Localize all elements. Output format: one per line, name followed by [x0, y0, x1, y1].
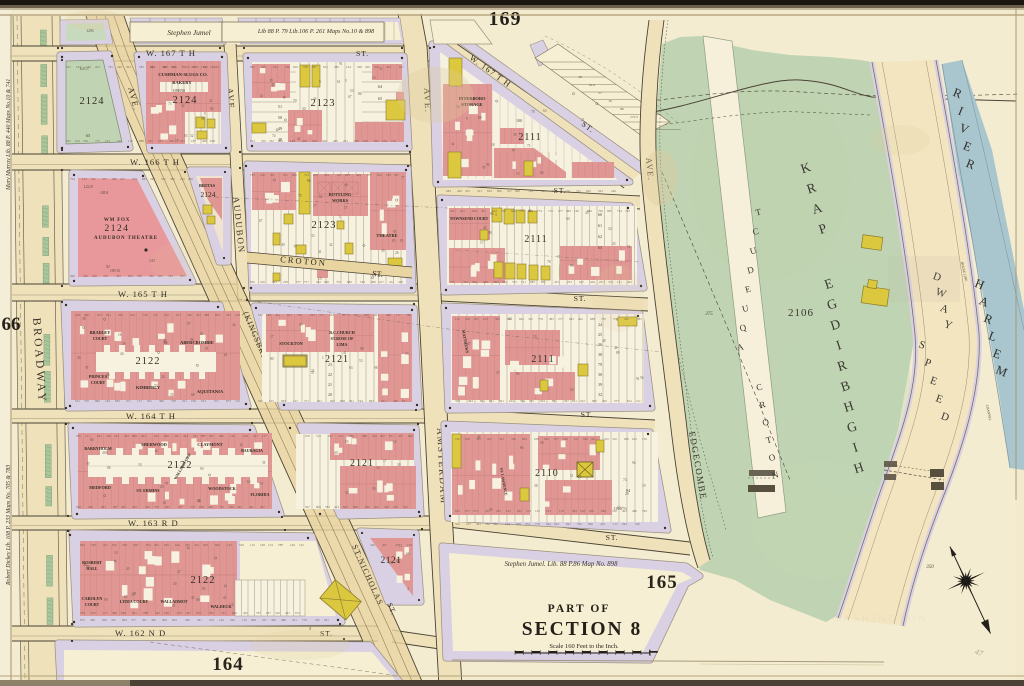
svg-text:375: 375 — [705, 312, 713, 317]
svg-text:164: 164 — [212, 654, 244, 675]
svg-text:ST. ERMINS: ST. ERMINS — [136, 488, 160, 493]
svg-text:852: 852 — [273, 65, 278, 69]
svg-text:LYDIA COURT: LYDIA COURT — [120, 599, 149, 604]
svg-text:341: 341 — [91, 177, 96, 181]
svg-text:404: 404 — [468, 399, 473, 403]
svg-text:286: 286 — [334, 65, 339, 69]
svg-text:923: 923 — [554, 522, 559, 526]
svg-text:452: 452 — [243, 611, 248, 615]
svg-text:BARRYHOLM: BARRYHOLM — [84, 446, 112, 451]
svg-text:51: 51 — [627, 245, 631, 249]
svg-text:853: 853 — [507, 317, 512, 321]
svg-text:CUSHMAN-SLUGS CO.: CUSHMAN-SLUGS CO. — [158, 72, 208, 77]
svg-text:294: 294 — [622, 522, 627, 526]
svg-text:886: 886 — [347, 280, 352, 284]
svg-text:934: 934 — [250, 139, 255, 143]
svg-text:721: 721 — [521, 280, 526, 284]
svg-text:659: 659 — [293, 65, 298, 69]
svg-text:161: 161 — [546, 509, 551, 513]
svg-text:993: 993 — [101, 505, 106, 509]
svg-text:744: 744 — [358, 399, 363, 403]
svg-text:32: 32 — [181, 104, 185, 108]
svg-text:149: 149 — [290, 543, 295, 547]
svg-text:17: 17 — [480, 241, 484, 245]
svg-text:194: 194 — [505, 522, 510, 526]
svg-text:534: 534 — [382, 139, 387, 143]
svg-text:135: 135 — [82, 177, 87, 181]
svg-text:872: 872 — [295, 611, 300, 615]
svg-text:64: 64 — [90, 438, 94, 442]
svg-text:63: 63 — [598, 245, 602, 250]
svg-text:201: 201 — [95, 65, 100, 69]
svg-text:290: 290 — [88, 505, 93, 509]
svg-text:115: 115 — [613, 522, 618, 526]
svg-text:246: 246 — [164, 611, 169, 615]
svg-text:527: 527 — [262, 618, 267, 622]
svg-text:631: 631 — [460, 209, 465, 213]
svg-text:669: 669 — [232, 611, 237, 615]
svg-text:719: 719 — [535, 522, 540, 526]
svg-text:393: 393 — [126, 65, 131, 69]
svg-text:39: 39 — [381, 249, 385, 253]
svg-text:502: 502 — [329, 313, 334, 317]
svg-text:326: 326 — [230, 618, 235, 622]
svg-text:485: 485 — [549, 317, 554, 321]
svg-text:39: 39 — [513, 133, 517, 137]
svg-text:220: 220 — [635, 522, 640, 526]
svg-text:79: 79 — [598, 362, 602, 367]
svg-text:610: 610 — [130, 313, 135, 317]
svg-text:445: 445 — [237, 505, 242, 509]
svg-text:787: 787 — [256, 611, 261, 615]
svg-text:W. 166 T H: W. 166 T H — [130, 157, 180, 167]
svg-text:631: 631 — [287, 313, 292, 317]
svg-text:792: 792 — [529, 399, 534, 403]
svg-text:573: 573 — [473, 509, 478, 513]
svg-text:32: 32 — [598, 392, 602, 397]
svg-text:39: 39 — [122, 342, 126, 346]
svg-text:47: 47 — [177, 570, 181, 574]
svg-text:49: 49 — [281, 243, 285, 247]
svg-text:159: 159 — [407, 543, 412, 547]
svg-text:84: 84 — [516, 372, 520, 376]
svg-text:846: 846 — [601, 509, 606, 513]
svg-text:84: 84 — [540, 171, 544, 175]
svg-text:627: 627 — [328, 434, 333, 438]
svg-text:238: 238 — [137, 274, 142, 278]
svg-text:995: 995 — [80, 543, 85, 547]
svg-text:36: 36 — [197, 499, 201, 503]
svg-text:29: 29 — [389, 561, 393, 565]
svg-text:523: 523 — [114, 434, 119, 438]
svg-text:54: 54 — [608, 227, 612, 231]
svg-text:999: 999 — [164, 434, 169, 438]
svg-text:221: 221 — [103, 543, 108, 547]
svg-text:74: 74 — [272, 134, 276, 138]
svg-text:25: 25 — [578, 475, 582, 479]
svg-text:475: 475 — [102, 177, 107, 181]
svg-text:2111: 2111 — [531, 354, 554, 365]
svg-text:351: 351 — [292, 618, 297, 622]
svg-text:994: 994 — [546, 522, 551, 526]
svg-text:957: 957 — [253, 434, 258, 438]
svg-text:237: 237 — [178, 505, 183, 509]
svg-text:397: 397 — [270, 173, 275, 177]
svg-text:565: 565 — [403, 505, 408, 509]
svg-text:691: 691 — [132, 611, 137, 615]
svg-text:528: 528 — [465, 317, 470, 321]
svg-text:692: 692 — [330, 399, 335, 403]
svg-text:889: 889 — [132, 434, 137, 438]
svg-text:430: 430 — [398, 280, 403, 284]
svg-text:PRINCES: PRINCES — [89, 374, 108, 379]
svg-text:W. 167 T H: W. 167 T H — [146, 48, 196, 58]
svg-text:579: 579 — [190, 505, 195, 509]
svg-text:138: 138 — [230, 434, 235, 438]
svg-text:Stephen Jumel. Lib. 88 P.86 M: Stephen Jumel. Lib. 88 P.86 Map No. 898 — [505, 561, 619, 568]
svg-text:319: 319 — [103, 274, 108, 278]
svg-text:168: 168 — [260, 543, 265, 547]
svg-text:18: 18 — [138, 463, 142, 467]
svg-text:51: 51 — [278, 104, 282, 109]
svg-text:834: 834 — [487, 189, 492, 193]
svg-text:976: 976 — [305, 434, 310, 438]
svg-text:377: 377 — [614, 399, 619, 403]
svg-text:370: 370 — [84, 399, 89, 403]
svg-text:146: 146 — [105, 399, 110, 403]
svg-text:188: 188 — [386, 173, 391, 177]
svg-text:989: 989 — [371, 280, 376, 284]
svg-text:39: 39 — [598, 382, 602, 387]
svg-text:405: 405 — [154, 543, 159, 547]
svg-text:21: 21 — [328, 382, 332, 387]
svg-text:127: 127 — [293, 399, 298, 403]
svg-text:21: 21 — [581, 118, 585, 122]
svg-text:63: 63 — [247, 480, 251, 484]
svg-text:482: 482 — [191, 65, 196, 69]
svg-text:74: 74 — [623, 478, 627, 482]
svg-text:290: 290 — [188, 177, 193, 181]
svg-text:BOTTLING: BOTTLING — [329, 192, 352, 197]
svg-text:720: 720 — [297, 313, 302, 317]
svg-text:769: 769 — [91, 543, 96, 547]
svg-text:61: 61 — [598, 223, 602, 228]
svg-text:467: 467 — [142, 618, 147, 622]
svg-text:23: 23 — [328, 362, 332, 367]
svg-text:729: 729 — [528, 189, 533, 193]
svg-text:856: 856 — [219, 434, 224, 438]
svg-text:346: 346 — [370, 543, 375, 547]
svg-text:66: 66 — [406, 552, 410, 556]
svg-text:774: 774 — [537, 209, 542, 213]
svg-text:426: 426 — [590, 280, 595, 284]
svg-text:407: 407 — [186, 611, 191, 615]
svg-text:802: 802 — [343, 505, 348, 509]
svg-text:617: 617 — [574, 437, 579, 441]
svg-text:BRADLEY: BRADLEY — [90, 330, 110, 335]
svg-text:720: 720 — [455, 437, 460, 441]
svg-text:681: 681 — [249, 505, 254, 509]
svg-text:199.10: 199.10 — [110, 269, 120, 273]
svg-text:428: 428 — [457, 189, 462, 193]
svg-text:108: 108 — [235, 313, 240, 317]
svg-text:98: 98 — [488, 231, 492, 235]
svg-text:366: 366 — [92, 274, 97, 278]
svg-text:75: 75 — [298, 194, 302, 198]
svg-text:943: 943 — [272, 280, 277, 284]
svg-text:435: 435 — [465, 189, 470, 193]
svg-text:609: 609 — [354, 139, 359, 143]
svg-text:291: 291 — [343, 139, 348, 143]
svg-text:339: 339 — [80, 611, 85, 615]
svg-text:591: 591 — [349, 399, 354, 403]
svg-text:348: 348 — [90, 618, 95, 622]
svg-text:507: 507 — [394, 173, 399, 177]
svg-text:STOCKTON: STOCKTON — [279, 341, 303, 346]
svg-text:994: 994 — [522, 437, 527, 441]
svg-text:37: 37 — [496, 371, 500, 375]
svg-text:909: 909 — [345, 173, 350, 177]
svg-text:788: 788 — [143, 611, 148, 615]
svg-text:756: 756 — [154, 505, 159, 509]
svg-text:151: 151 — [85, 434, 90, 438]
svg-text:510: 510 — [338, 434, 343, 438]
svg-text:16: 16 — [118, 333, 122, 337]
svg-text:505: 505 — [496, 509, 501, 513]
svg-text:128: 128 — [86, 65, 91, 69]
svg-text:812: 812 — [627, 399, 632, 403]
svg-text:346: 346 — [187, 313, 192, 317]
svg-text:817: 817 — [402, 399, 407, 403]
svg-text:W. 165 T H: W. 165 T H — [118, 289, 168, 299]
svg-text:761: 761 — [193, 434, 198, 438]
svg-text:ST.: ST. — [606, 533, 619, 542]
svg-text:840: 840 — [408, 434, 413, 438]
svg-text:96: 96 — [486, 163, 490, 167]
svg-text:851: 851 — [541, 280, 546, 284]
svg-text:850: 850 — [250, 65, 255, 69]
svg-text:COURT: COURT — [93, 336, 108, 341]
svg-text:388: 388 — [204, 313, 209, 317]
svg-text:257: 257 — [120, 177, 125, 181]
svg-text:18: 18 — [175, 139, 179, 143]
svg-text:20: 20 — [173, 582, 177, 586]
svg-text:247: 247 — [148, 139, 153, 143]
svg-text:2110: 2110 — [535, 468, 559, 479]
svg-text:52: 52 — [190, 134, 194, 138]
svg-text:80: 80 — [270, 357, 274, 361]
svg-text:345: 345 — [111, 618, 116, 622]
svg-text:948: 948 — [364, 313, 369, 317]
svg-text:238: 238 — [589, 509, 594, 513]
svg-text:35: 35 — [612, 242, 616, 246]
svg-text:928: 928 — [199, 505, 204, 509]
svg-text:588: 588 — [362, 434, 367, 438]
svg-text:770: 770 — [302, 618, 307, 622]
svg-text:394: 394 — [520, 399, 525, 403]
svg-text:61.6: 61.6 — [589, 83, 595, 87]
svg-text:66: 66 — [520, 446, 524, 450]
svg-text:132: 132 — [227, 543, 232, 547]
svg-text:312: 312 — [528, 317, 533, 321]
svg-text:2111: 2111 — [518, 132, 541, 143]
svg-text:719: 719 — [548, 209, 553, 213]
svg-text:243: 243 — [310, 313, 315, 317]
svg-text:84: 84 — [210, 107, 214, 111]
svg-text:492: 492 — [380, 434, 385, 438]
svg-text:304: 304 — [374, 65, 379, 69]
svg-text:997: 997 — [113, 505, 118, 509]
svg-text:582: 582 — [495, 317, 500, 321]
svg-text:601: 601 — [374, 313, 379, 317]
svg-text:19: 19 — [642, 484, 646, 488]
svg-text:410: 410 — [600, 522, 605, 526]
svg-text:56: 56 — [640, 376, 644, 380]
svg-text:649: 649 — [583, 437, 588, 441]
svg-text:175: 175 — [137, 399, 142, 403]
svg-text:677: 677 — [558, 209, 563, 213]
svg-text:688: 688 — [139, 139, 144, 143]
svg-text:63: 63 — [349, 366, 353, 370]
svg-text:PART OF: PART OF — [548, 603, 611, 615]
svg-text:91: 91 — [339, 62, 343, 66]
svg-text:284: 284 — [446, 189, 451, 193]
svg-text:300: 300 — [271, 618, 276, 622]
svg-text:53: 53 — [359, 359, 363, 363]
svg-text:86: 86 — [358, 92, 362, 96]
svg-text:24: 24 — [161, 375, 165, 379]
svg-text:W. 162 N D: W. 162 N D — [115, 628, 166, 638]
svg-text:341: 341 — [66, 65, 71, 69]
svg-text:913: 913 — [201, 399, 206, 403]
svg-text:65: 65 — [86, 133, 91, 138]
svg-text:581: 581 — [226, 313, 231, 317]
svg-text:506: 506 — [76, 505, 81, 509]
svg-text:12: 12 — [230, 603, 234, 607]
svg-text:60: 60 — [566, 217, 570, 221]
svg-text:371: 371 — [304, 399, 309, 403]
svg-text:530: 530 — [612, 509, 617, 513]
svg-text:86: 86 — [107, 466, 111, 470]
svg-text:948: 948 — [324, 280, 329, 284]
svg-text:17: 17 — [383, 459, 387, 463]
svg-text:415: 415 — [153, 313, 158, 317]
svg-text:469: 469 — [202, 139, 207, 143]
svg-text:290: 290 — [229, 505, 234, 509]
svg-text:407: 407 — [382, 543, 387, 547]
svg-text:613: 613 — [483, 317, 488, 321]
svg-text:738: 738 — [171, 399, 176, 403]
svg-text:261: 261 — [154, 434, 159, 438]
svg-text:515: 515 — [576, 189, 581, 193]
svg-text:94: 94 — [632, 461, 636, 465]
svg-text:1: 1 — [339, 215, 341, 219]
svg-text:157: 157 — [103, 611, 108, 615]
svg-text:645: 645 — [569, 317, 574, 321]
svg-text:17: 17 — [313, 204, 317, 208]
svg-text:13: 13 — [393, 440, 397, 444]
svg-text:328: 328 — [133, 543, 138, 547]
svg-text:727: 727 — [319, 313, 324, 317]
svg-text:740: 740 — [501, 209, 506, 213]
svg-text:882: 882 — [95, 399, 100, 403]
svg-text:88: 88 — [478, 116, 482, 120]
svg-text:330: 330 — [455, 399, 460, 403]
svg-text:470: 470 — [313, 173, 318, 177]
svg-text:415: 415 — [485, 509, 490, 513]
svg-text:820: 820 — [102, 618, 107, 622]
svg-text:916: 916 — [363, 139, 368, 143]
svg-text:96: 96 — [201, 117, 205, 121]
svg-text:ST.ROSE OF: ST.ROSE OF — [330, 336, 354, 341]
svg-text:763: 763 — [219, 505, 224, 509]
svg-text:50: 50 — [278, 115, 282, 120]
svg-text:233: 233 — [567, 280, 572, 284]
svg-text:52: 52 — [345, 491, 349, 495]
svg-text:948: 948 — [563, 437, 568, 441]
svg-text:560: 560 — [493, 522, 498, 526]
svg-text:836: 836 — [164, 543, 169, 547]
svg-text:86: 86 — [620, 107, 624, 111]
svg-text:78: 78 — [547, 260, 551, 264]
svg-text:170: 170 — [559, 509, 564, 513]
svg-text:30: 30 — [598, 372, 602, 377]
svg-text:820: 820 — [544, 437, 549, 441]
svg-text:454: 454 — [194, 543, 199, 547]
svg-text:122.8: 122.8 — [84, 184, 93, 189]
svg-text:2122: 2122 — [191, 575, 216, 586]
svg-text:57: 57 — [598, 91, 602, 95]
svg-text:966: 966 — [472, 209, 477, 213]
svg-text:452: 452 — [316, 280, 321, 284]
svg-text:568: 568 — [357, 65, 362, 69]
svg-text:778: 778 — [538, 317, 543, 321]
svg-text:526: 526 — [258, 399, 263, 403]
svg-text:ST.: ST. — [356, 49, 369, 58]
svg-text:164: 164 — [346, 65, 351, 69]
svg-text:2124: 2124 — [105, 224, 130, 234]
svg-text:633: 633 — [177, 611, 182, 615]
svg-text:577: 577 — [304, 280, 309, 284]
svg-text:552: 552 — [580, 399, 585, 403]
svg-text:605: 605 — [165, 505, 170, 509]
svg-text:441: 441 — [275, 313, 280, 317]
svg-text:700: 700 — [76, 434, 81, 438]
svg-text:406: 406 — [386, 313, 391, 317]
svg-text:266: 266 — [208, 505, 213, 509]
svg-text:101: 101 — [158, 139, 163, 143]
svg-text:59: 59 — [163, 341, 167, 345]
svg-text:650: 650 — [112, 543, 117, 547]
svg-text:891: 891 — [552, 399, 557, 403]
svg-text:38: 38 — [598, 352, 602, 357]
svg-text:783: 783 — [250, 173, 255, 177]
svg-text:224: 224 — [75, 139, 80, 143]
svg-text:9: 9 — [319, 80, 321, 84]
svg-text:638: 638 — [210, 139, 215, 143]
svg-text:905: 905 — [150, 65, 155, 69]
svg-text:396: 396 — [112, 611, 117, 615]
svg-text:462: 462 — [578, 317, 583, 321]
svg-text:838: 838 — [340, 399, 345, 403]
svg-text:757: 757 — [296, 280, 301, 284]
svg-text:2124: 2124 — [80, 96, 105, 107]
svg-text:901: 901 — [317, 399, 322, 403]
svg-text:228: 228 — [283, 280, 288, 284]
svg-text:477: 477 — [367, 173, 372, 177]
svg-text:526: 526 — [455, 522, 460, 526]
svg-text:65: 65 — [378, 96, 382, 101]
